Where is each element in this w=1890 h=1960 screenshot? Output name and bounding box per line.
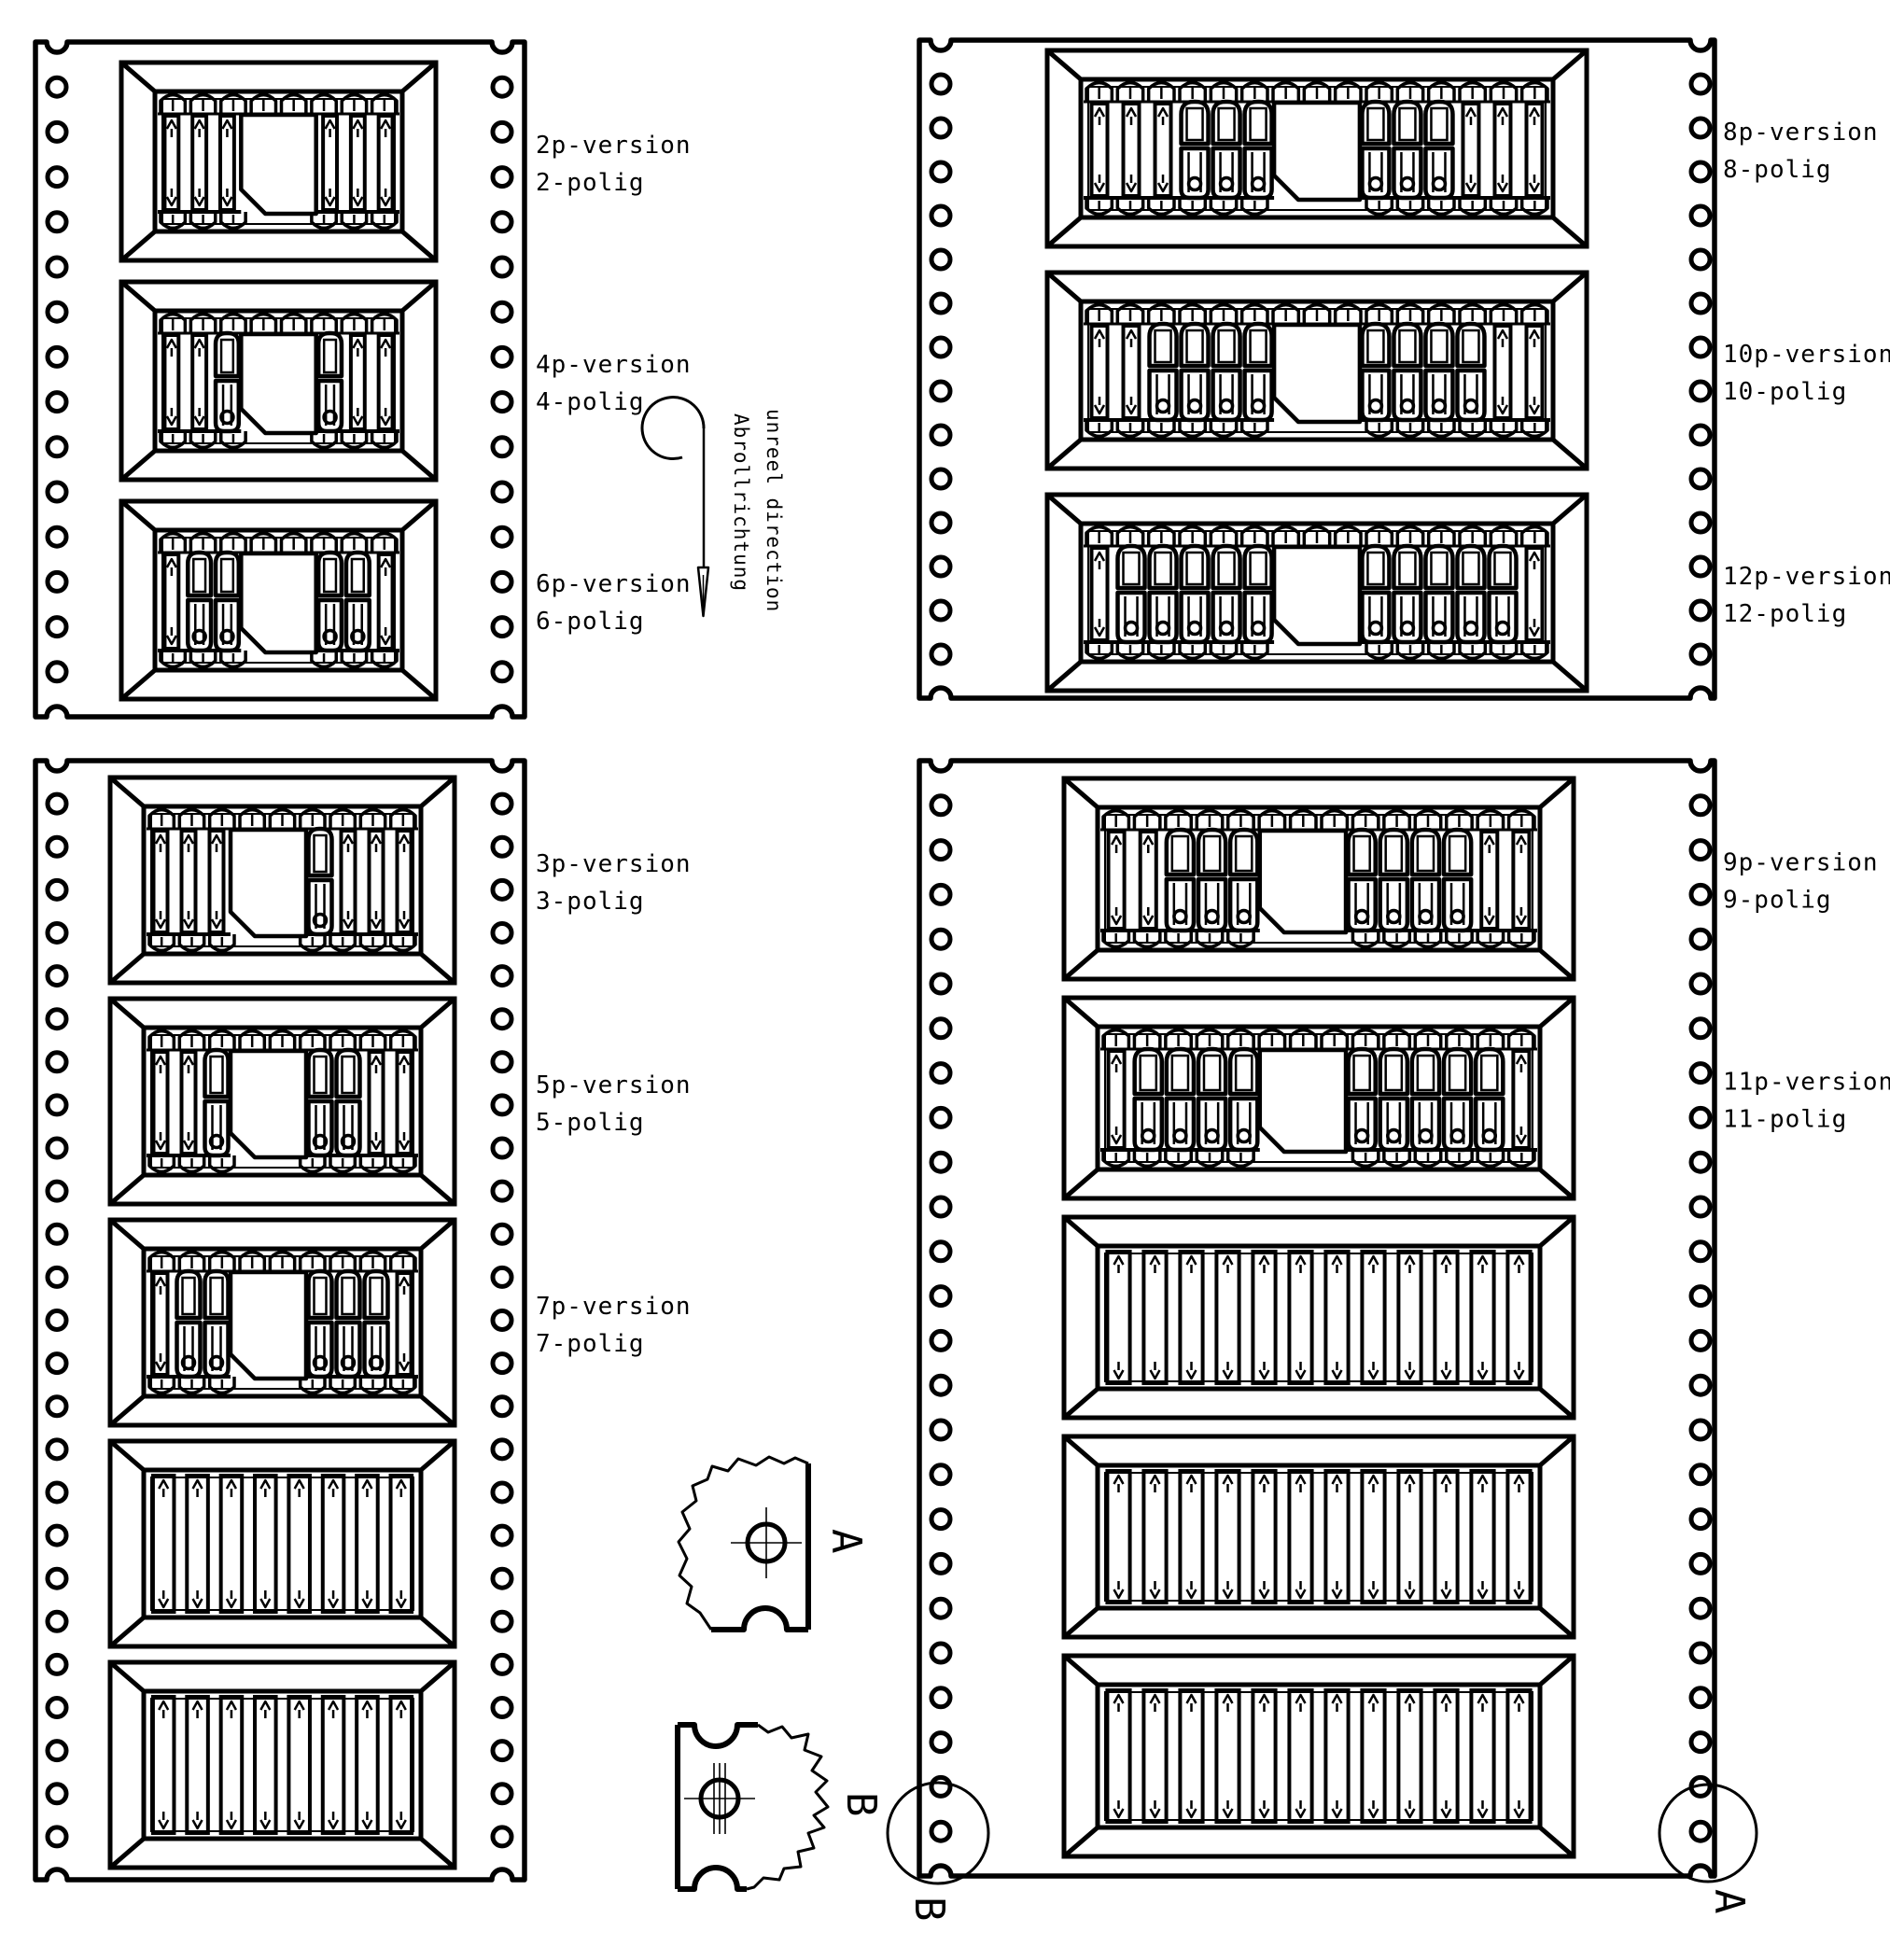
cavity-rib-tip bbox=[399, 919, 409, 928]
sprocket-hole bbox=[493, 1655, 511, 1673]
cavity-rib-tip bbox=[159, 1599, 168, 1607]
pocket-version-label: 9p-version bbox=[1723, 849, 1879, 877]
contact-arch-inner bbox=[1386, 1056, 1402, 1090]
cavity-rib-tip bbox=[156, 1141, 165, 1149]
pocket-poles-label: 11-polig bbox=[1723, 1106, 1847, 1134]
cavity-rib-tip bbox=[1224, 1589, 1233, 1598]
section-marker-A: A bbox=[1659, 1785, 1757, 1914]
cavity-rib-tip bbox=[1187, 1476, 1197, 1484]
contact-arch-inner bbox=[1251, 330, 1267, 362]
detail-b-top-edge-with-notch bbox=[678, 1725, 758, 1746]
contact-arch-inner bbox=[343, 1278, 355, 1314]
pocket-inner-edge bbox=[1098, 1465, 1540, 1608]
pocket-empty-3-3 bbox=[1064, 1436, 1574, 1637]
sprocket-hole bbox=[493, 1699, 511, 1717]
cavity-rib-tip bbox=[353, 340, 362, 348]
unreel-arrow-hook bbox=[642, 398, 704, 459]
contact-pin-hole bbox=[1451, 911, 1463, 923]
pocket-version-label: 6p-version bbox=[536, 570, 692, 598]
pocket-empty-3-4 bbox=[1064, 1656, 1574, 1856]
contact-arch-inner bbox=[1399, 553, 1415, 584]
pocket-bevel bbox=[1540, 1656, 1574, 1685]
sprocket-hole bbox=[48, 663, 66, 681]
tape-bottom-right: 9p-version9-polig11p-version11-polig bbox=[919, 761, 1890, 1876]
pocket-bevel bbox=[1064, 1608, 1098, 1637]
cavity-rib-tip bbox=[295, 1820, 304, 1828]
pocket-poles-label: 4-polig bbox=[536, 388, 645, 416]
sprocket-hole bbox=[48, 393, 66, 412]
contact-arch-inner bbox=[343, 1057, 355, 1093]
sprocket-hole bbox=[1691, 338, 1710, 357]
cavity-rib-tip bbox=[1333, 1809, 1342, 1817]
cavity-rib-tip bbox=[295, 1599, 304, 1607]
contact-arch-inner bbox=[1399, 330, 1415, 362]
pocket-2p bbox=[121, 63, 436, 260]
cavity-rib-tip bbox=[1296, 1809, 1306, 1817]
cavity-rib-tip bbox=[1478, 1370, 1488, 1379]
pocket-8p bbox=[1047, 50, 1587, 246]
contact-arch-inner bbox=[193, 559, 205, 592]
contact-pin-hole bbox=[1189, 623, 1201, 635]
pocket-bevel bbox=[421, 1175, 455, 1204]
pocket-bevel bbox=[1064, 1169, 1098, 1198]
cavity-rib-tip bbox=[1517, 1135, 1526, 1143]
sprocket-hole bbox=[1691, 1822, 1710, 1841]
cavity-rib-tip bbox=[167, 340, 176, 348]
pocket-bevel bbox=[421, 954, 455, 983]
cavity-rib-tip bbox=[1333, 1370, 1342, 1379]
pocket-inner-edge bbox=[1098, 1246, 1540, 1389]
sprocket-hole bbox=[931, 1688, 950, 1707]
contact-arch-inner bbox=[1431, 553, 1447, 584]
sprocket-hole bbox=[48, 1440, 66, 1459]
cavity-rib-tip bbox=[399, 1278, 409, 1286]
sprocket-hole bbox=[1691, 1153, 1710, 1171]
contact-pin-hole bbox=[1496, 623, 1508, 635]
contact-pin-hole bbox=[1483, 1130, 1495, 1142]
pocket-poles-label: 3-polig bbox=[536, 888, 645, 916]
cavity-rib-tip bbox=[167, 120, 176, 129]
sprocket-hole bbox=[493, 794, 511, 813]
pocket-version-label: 7p-version bbox=[536, 1293, 692, 1321]
pocket-bevel bbox=[1553, 50, 1587, 79]
sprocket-hole bbox=[1691, 1644, 1710, 1662]
sprocket-hole bbox=[931, 1331, 950, 1350]
sprocket-hole bbox=[48, 1483, 66, 1502]
pocket-bevel bbox=[110, 1617, 144, 1646]
cavity-rib-tip bbox=[1112, 1056, 1121, 1064]
sprocket-hole bbox=[493, 1096, 511, 1114]
cavity-rib-tip bbox=[167, 197, 176, 205]
sprocket-hole bbox=[931, 930, 950, 948]
cavity-rib-tip bbox=[1095, 627, 1104, 636]
contact-arch-inner bbox=[1431, 108, 1447, 140]
sprocket-hole bbox=[48, 1699, 66, 1717]
contact-pin-hole bbox=[1174, 1130, 1186, 1142]
sprocket-hole bbox=[48, 1182, 66, 1200]
contact-arch-inner bbox=[315, 835, 327, 872]
pocket-poles-label: 5-polig bbox=[536, 1109, 645, 1137]
pocket-10p bbox=[1047, 273, 1587, 469]
cavity-rib-tip bbox=[156, 1278, 165, 1286]
sprocket-hole bbox=[1691, 1510, 1710, 1529]
cavity-rib-tip bbox=[1498, 405, 1507, 413]
cavity-rib-tip bbox=[1442, 1476, 1451, 1484]
sprocket-hole bbox=[493, 1010, 511, 1029]
cavity-rib-tip bbox=[329, 1480, 338, 1489]
sprocket-hole bbox=[1691, 1421, 1710, 1439]
cavity-rib-tip bbox=[1478, 1695, 1488, 1703]
pocket-bevel bbox=[402, 501, 436, 530]
cavity-rib-tip bbox=[193, 1820, 203, 1828]
cavity-rib-tip bbox=[1114, 1370, 1124, 1379]
cavity-rib-tip bbox=[156, 1057, 165, 1065]
cavity-rib-tip bbox=[1260, 1589, 1269, 1598]
pocket-bevel bbox=[110, 1396, 144, 1425]
contact-arch-inner bbox=[1172, 836, 1188, 871]
sprocket-hole bbox=[1691, 294, 1710, 313]
cavity-rib-tip bbox=[1530, 405, 1539, 413]
sprocket-hole bbox=[931, 557, 950, 576]
cavity-rib-tip bbox=[1296, 1589, 1306, 1598]
sprocket-hole bbox=[931, 513, 950, 532]
sprocket-hole bbox=[1691, 1242, 1710, 1261]
unreel-direction-text: unreel direction bbox=[763, 409, 785, 612]
contact-pin-hole bbox=[1189, 178, 1201, 190]
cavity-rib-tip bbox=[222, 197, 231, 205]
cavity-rib-tip bbox=[1333, 1476, 1342, 1484]
cavity-rib-tip bbox=[1530, 627, 1539, 636]
cavity-rib-tip bbox=[1151, 1256, 1160, 1265]
keying-window bbox=[1274, 547, 1360, 644]
cavity-rib-tip bbox=[1187, 1256, 1197, 1265]
sprocket-hole bbox=[493, 1526, 511, 1545]
cavity-rib-tip bbox=[1296, 1695, 1306, 1703]
contact-pin-hole bbox=[1369, 400, 1381, 413]
sprocket-hole bbox=[1691, 75, 1710, 93]
contact-arch-inner bbox=[1187, 553, 1203, 584]
sprocket-hole bbox=[931, 1554, 950, 1573]
sprocket-hole bbox=[931, 426, 950, 444]
pocket-bevel bbox=[110, 1220, 144, 1249]
sprocket-hole bbox=[931, 206, 950, 225]
cavity-rib-tip bbox=[1158, 108, 1168, 117]
cavity-rib-tip bbox=[1224, 1695, 1233, 1703]
pocket-bevel bbox=[121, 231, 155, 260]
sprocket-hole bbox=[493, 1354, 511, 1373]
sprocket-hole bbox=[493, 393, 511, 412]
cavity-rib-tip bbox=[1114, 1589, 1124, 1598]
cavity-rib-tip bbox=[159, 1480, 168, 1489]
sprocket-hole bbox=[48, 794, 66, 813]
pocket-floor-edge bbox=[1105, 1473, 1533, 1601]
cavity-rib-tip bbox=[1112, 916, 1121, 924]
sprocket-hole bbox=[48, 1311, 66, 1330]
cavity-rib-tip bbox=[212, 835, 221, 844]
keying-window bbox=[241, 115, 315, 214]
cavity-rib-tip bbox=[1530, 553, 1539, 561]
contact-arch-inner bbox=[1251, 108, 1267, 140]
pocket-bevel bbox=[421, 777, 455, 806]
sprocket-hole bbox=[1691, 119, 1710, 137]
pocket-version-label: 8p-version bbox=[1723, 119, 1879, 147]
cavity-rib-tip bbox=[1369, 1256, 1379, 1265]
pocket-bevel bbox=[110, 1441, 144, 1470]
cavity-rib-tip bbox=[353, 416, 362, 425]
cavity-rib-tip bbox=[1127, 108, 1136, 117]
cavity-rib-tip bbox=[1530, 108, 1539, 117]
tape-top-left: 2p-version2-polig4p-version4-polig6p-ver… bbox=[35, 42, 692, 717]
pocket-7p bbox=[110, 1220, 455, 1425]
sprocket-hole bbox=[931, 601, 950, 620]
sprocket-hole bbox=[48, 438, 66, 456]
sprocket-hole bbox=[931, 841, 950, 860]
pocket-bevel bbox=[110, 1839, 144, 1868]
pocket-version-label: 3p-version bbox=[536, 850, 692, 878]
marker-b-label: B bbox=[905, 1897, 953, 1922]
cavity-rib-tip bbox=[1114, 1809, 1124, 1817]
contact-arch-inner bbox=[1236, 836, 1252, 871]
detail-a-bottom-edge-with-notch bbox=[711, 1608, 808, 1630]
cavity-rib-tip bbox=[295, 1701, 304, 1710]
sprocket-hole bbox=[48, 880, 66, 899]
cavity-rib-tip bbox=[295, 1480, 304, 1489]
pocket-bevel bbox=[1047, 50, 1081, 79]
pocket-floor-edge bbox=[151, 1699, 413, 1831]
pocket-bevel bbox=[1047, 440, 1081, 469]
sprocket-hole bbox=[931, 119, 950, 137]
cavity-rib-tip bbox=[362, 1820, 371, 1828]
sprocket-hole bbox=[931, 1376, 950, 1394]
pocket-bevel bbox=[1540, 1608, 1574, 1637]
sprocket-hole bbox=[931, 294, 950, 313]
carrier-tape-drawing: 2p-version2-polig4p-version4-polig6p-ver… bbox=[0, 0, 1890, 1956]
sprocket-hole bbox=[493, 77, 511, 96]
sprocket-hole bbox=[48, 1267, 66, 1286]
cavity-rib-tip bbox=[227, 1820, 236, 1828]
pocket-poles-label: 9-polig bbox=[1723, 887, 1832, 915]
sprocket-hole bbox=[931, 1287, 950, 1306]
pocket-version-label: 12p-version bbox=[1723, 563, 1890, 591]
pocket-empty-2-3 bbox=[110, 1441, 455, 1646]
sprocket-hole bbox=[48, 1526, 66, 1545]
pocket-bevel bbox=[1540, 1169, 1574, 1198]
pocket-9p bbox=[1064, 778, 1574, 979]
sprocket-hole bbox=[931, 1153, 950, 1171]
cavity-rib-tip bbox=[371, 1057, 381, 1065]
marker-a-label: A bbox=[1705, 1889, 1753, 1914]
sprocket-hole bbox=[931, 1777, 950, 1796]
cavity-rib-tip bbox=[1515, 1476, 1524, 1484]
sprocket-hole bbox=[931, 469, 950, 488]
cavity-rib-tip bbox=[1442, 1256, 1451, 1265]
contact-arch-inner bbox=[371, 1278, 383, 1314]
cavity-rib-tip bbox=[1187, 1589, 1197, 1598]
pocket-bevel bbox=[1540, 950, 1574, 979]
sprocket-hole bbox=[931, 1197, 950, 1216]
sprocket-hole bbox=[493, 618, 511, 637]
cavity-rib-tip bbox=[1369, 1589, 1379, 1598]
pocket-version-label: 10p-version bbox=[1723, 341, 1890, 369]
pocket-bevel bbox=[1540, 998, 1574, 1027]
contact-arch-inner bbox=[211, 1057, 223, 1093]
pocket-bevel bbox=[121, 501, 155, 530]
cavity-rib-tip bbox=[1224, 1476, 1233, 1484]
cavity-rib-tip bbox=[1127, 183, 1136, 191]
contact-arch-inner bbox=[324, 559, 336, 592]
cavity-rib-tip bbox=[381, 197, 390, 205]
cavity-rib-tip bbox=[1517, 1056, 1526, 1064]
sprocket-hole bbox=[493, 213, 511, 231]
sprocket-hole bbox=[1691, 1599, 1710, 1617]
sprocket-hole bbox=[1691, 206, 1710, 225]
sprocket-hole bbox=[1691, 1554, 1710, 1573]
sprocket-hole bbox=[48, 213, 66, 231]
keying-window bbox=[1274, 325, 1360, 422]
cavity-rib-tip bbox=[1442, 1589, 1451, 1598]
contact-pin-hole bbox=[1464, 400, 1477, 413]
sprocket-hole bbox=[48, 527, 66, 546]
sprocket-hole bbox=[1691, 1064, 1710, 1083]
cavity-rib-tip bbox=[227, 1599, 236, 1607]
cavity-rib-tip bbox=[397, 1701, 406, 1710]
contact-arch-inner bbox=[1155, 553, 1171, 584]
cavity-rib-tip bbox=[1530, 330, 1539, 339]
pocket-bevel bbox=[402, 231, 436, 260]
sprocket-hole bbox=[493, 1267, 511, 1286]
cavity-rib-tip bbox=[343, 919, 353, 928]
sprocket-hole bbox=[493, 663, 511, 681]
sprocket-hole bbox=[493, 483, 511, 501]
contact-arch-inner bbox=[324, 340, 336, 372]
pocket-bevel bbox=[1540, 1389, 1574, 1418]
contact-arch-inner bbox=[1431, 330, 1447, 362]
contact-pin-hole bbox=[1238, 911, 1250, 923]
pocket-poles-label: 2-polig bbox=[536, 169, 645, 197]
sprocket-hole bbox=[493, 122, 511, 141]
cavity-rib-tip bbox=[1224, 1809, 1233, 1817]
sprocket-hole bbox=[48, 1397, 66, 1416]
pocket-floor-edge bbox=[1105, 1253, 1533, 1381]
sprocket-hole bbox=[1691, 513, 1710, 532]
contact-arch-inner bbox=[1386, 836, 1402, 871]
cavity-rib-tip bbox=[1517, 836, 1526, 845]
cavity-rib-tip bbox=[195, 416, 204, 425]
sprocket-hole bbox=[931, 1019, 950, 1038]
contact-pin-hole bbox=[1388, 911, 1400, 923]
cavity-rib-tip bbox=[381, 416, 390, 425]
pocket-version-label: 11p-version bbox=[1723, 1069, 1890, 1097]
detail-b-break-line bbox=[747, 1725, 828, 1889]
sprocket-hole bbox=[493, 1053, 511, 1071]
sprocket-hole bbox=[931, 1510, 950, 1529]
cavity-rib-tip bbox=[1114, 1256, 1124, 1265]
contact-arch-inner bbox=[1219, 108, 1235, 140]
sprocket-hole bbox=[931, 796, 950, 815]
cavity-rib-tip bbox=[156, 835, 165, 844]
sprocket-hole bbox=[931, 1644, 950, 1662]
contact-arch-inner bbox=[1449, 1056, 1465, 1090]
sprocket-hole bbox=[493, 302, 511, 321]
cavity-rib-tip bbox=[1151, 1695, 1160, 1703]
pocket-floor-edge bbox=[1105, 1692, 1533, 1820]
sprocket-hole bbox=[493, 1440, 511, 1459]
cavity-rib-tip bbox=[1466, 108, 1476, 117]
pocket-bevel bbox=[121, 63, 155, 91]
contact-pin-hole bbox=[1356, 911, 1368, 923]
pocket-poles-label: 7-polig bbox=[536, 1330, 645, 1358]
pocket-bevel bbox=[1064, 778, 1098, 807]
pocket-bevel bbox=[1553, 495, 1587, 524]
cavity-rib-tip bbox=[260, 1480, 270, 1489]
sprocket-hole bbox=[48, 923, 66, 942]
pocket-bevel bbox=[421, 1441, 455, 1470]
sprocket-hole bbox=[1691, 1197, 1710, 1216]
sprocket-hole bbox=[493, 438, 511, 456]
cavity-rib-tip bbox=[381, 636, 390, 644]
contact-arch-inner bbox=[352, 559, 364, 592]
sprocket-hole bbox=[1691, 1019, 1710, 1038]
keying-window bbox=[231, 1272, 306, 1379]
cavity-rib-tip bbox=[195, 120, 204, 129]
contact-arch-inner bbox=[221, 340, 233, 372]
pocket-bevel bbox=[1553, 217, 1587, 246]
cavity-rib-tip bbox=[1260, 1476, 1269, 1484]
pocket-bevel bbox=[1064, 998, 1098, 1027]
contact-pin-hole bbox=[1369, 178, 1381, 190]
cavity-rib-tip bbox=[167, 416, 176, 425]
cavity-rib-tip bbox=[193, 1599, 203, 1607]
sprocket-hole bbox=[493, 1182, 511, 1200]
sprocket-hole bbox=[48, 1010, 66, 1029]
contact-arch-inner bbox=[1354, 1056, 1370, 1090]
cavity-rib-tip bbox=[353, 120, 362, 129]
pocket-bevel bbox=[1064, 1827, 1098, 1856]
sprocket-hole bbox=[1691, 1733, 1710, 1752]
pocket-poles-label: 10-polig bbox=[1723, 378, 1847, 406]
contact-arch-inner bbox=[1251, 553, 1267, 584]
pocket-bevel bbox=[1553, 273, 1587, 301]
sprocket-hole bbox=[1691, 469, 1710, 488]
cavity-rib-tip bbox=[227, 1701, 236, 1710]
contact-pin-hole bbox=[1388, 1130, 1400, 1142]
cavity-rib-tip bbox=[381, 340, 390, 348]
contact-arch-inner bbox=[1219, 553, 1235, 584]
contact-arch-inner bbox=[1418, 1056, 1434, 1090]
contact-arch-inner bbox=[221, 559, 233, 592]
sprocket-hole bbox=[493, 1311, 511, 1330]
contact-arch-inner bbox=[1494, 553, 1510, 584]
cavity-rib-tip bbox=[1333, 1256, 1342, 1265]
keying-window bbox=[1260, 1050, 1346, 1152]
sprocket-hole bbox=[493, 1397, 511, 1416]
sprocket-hole bbox=[493, 1827, 511, 1846]
cavity-rib-tip bbox=[399, 1362, 409, 1370]
pocket-bevel bbox=[121, 451, 155, 480]
cavity-rib-tip bbox=[1466, 183, 1476, 191]
cavity-rib-tip bbox=[1095, 183, 1104, 191]
sprocket-hole bbox=[493, 1785, 511, 1803]
sprocket-hole bbox=[48, 1742, 66, 1760]
contact-arch-inner bbox=[1367, 330, 1383, 362]
pocket-bevel bbox=[1540, 1436, 1574, 1465]
cavity-rib-tip bbox=[159, 1701, 168, 1710]
contact-pin-hole bbox=[1433, 623, 1445, 635]
pocket-5p bbox=[110, 999, 455, 1204]
keying-window bbox=[231, 830, 306, 936]
sprocket-hole bbox=[1691, 974, 1710, 993]
pocket-bevel bbox=[421, 1839, 455, 1868]
